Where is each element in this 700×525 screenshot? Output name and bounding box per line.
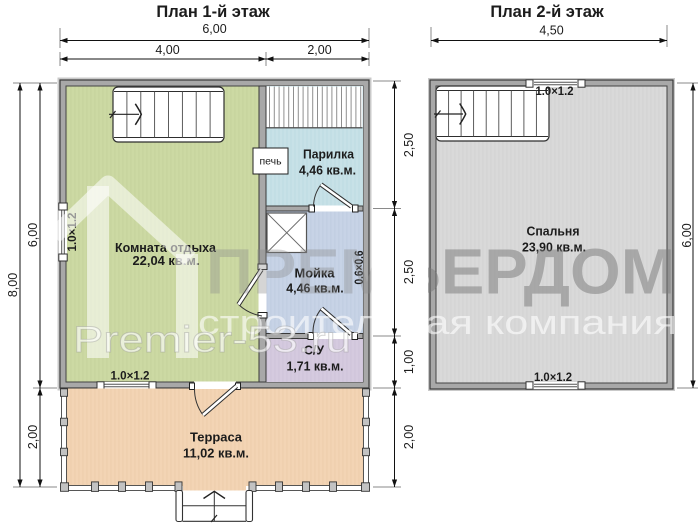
svg-text:Premier-53.ru: Premier-53.ru [73, 319, 351, 360]
svg-text:2,50: 2,50 [402, 133, 416, 157]
svg-text:План 1-й этаж: План 1-й этаж [156, 3, 270, 21]
svg-text:8,00: 8,00 [6, 273, 20, 297]
svg-text:1.0×1.2: 1.0×1.2 [111, 369, 150, 383]
svg-text:11,02 кв.м.: 11,02 кв.м. [183, 446, 249, 461]
svg-text:4,46 кв.м.: 4,46 кв.м. [299, 163, 356, 178]
svg-text:1,00: 1,00 [402, 350, 416, 374]
svg-text:2,00: 2,00 [307, 43, 331, 57]
svg-text:2,00: 2,00 [402, 425, 416, 449]
svg-text:6,00: 6,00 [680, 223, 694, 247]
svg-text:печь: печь [259, 156, 282, 168]
svg-text:1,71 кв.м.: 1,71 кв.м. [287, 359, 344, 374]
svg-text:2,00: 2,00 [26, 425, 40, 449]
svg-text:Парилка: Парилка [303, 147, 355, 162]
svg-text:План 2-й этаж: План 2-й этаж [490, 3, 604, 21]
svg-text:2,50: 2,50 [402, 260, 416, 284]
svg-text:1.0×1.2: 1.0×1.2 [536, 84, 574, 98]
svg-text:6,00: 6,00 [26, 223, 40, 247]
svg-text:Терраса: Терраса [190, 430, 243, 445]
svg-text:4,00: 4,00 [155, 43, 179, 57]
svg-text:4,50: 4,50 [539, 24, 563, 38]
svg-text:6,00: 6,00 [202, 22, 226, 36]
svg-text:1.0×1.2: 1.0×1.2 [534, 370, 572, 384]
